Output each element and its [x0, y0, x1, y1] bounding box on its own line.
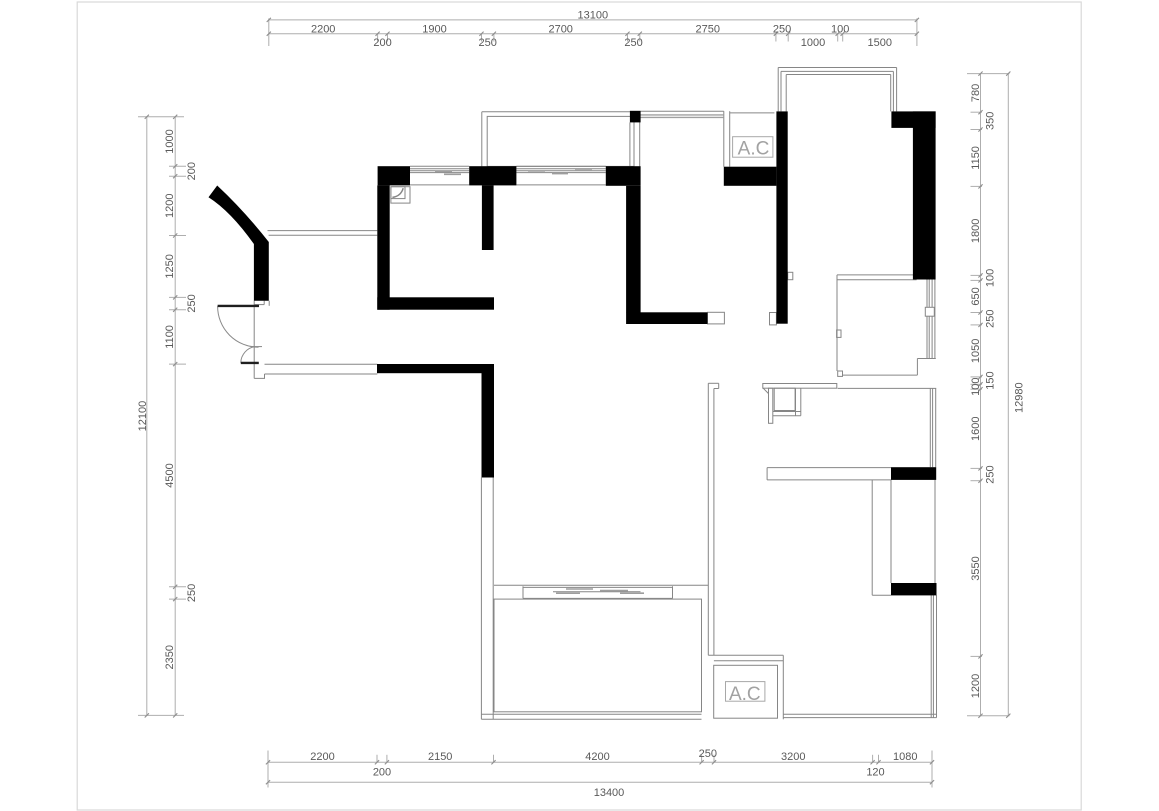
svg-text:2700: 2700: [548, 24, 572, 36]
svg-text:2750: 2750: [696, 24, 720, 36]
svg-text:200: 200: [373, 766, 391, 778]
svg-text:100: 100: [831, 24, 849, 36]
svg-text:650: 650: [970, 287, 982, 305]
svg-text:100: 100: [970, 378, 982, 396]
svg-text:1150: 1150: [970, 146, 982, 170]
svg-text:250: 250: [479, 37, 497, 49]
svg-text:120: 120: [866, 766, 884, 778]
svg-text:1050: 1050: [970, 339, 982, 363]
svg-text:250: 250: [984, 465, 996, 483]
svg-text:1900: 1900: [422, 24, 446, 36]
svg-text:12980: 12980: [1014, 382, 1026, 413]
svg-text:A.C: A.C: [738, 139, 770, 160]
svg-text:1200: 1200: [970, 674, 982, 698]
svg-text:13400: 13400: [594, 787, 625, 799]
svg-text:A.C: A.C: [729, 684, 761, 705]
svg-text:2350: 2350: [164, 645, 176, 669]
svg-text:12100: 12100: [137, 401, 149, 432]
svg-text:250: 250: [624, 37, 642, 49]
svg-text:13100: 13100: [578, 9, 609, 21]
svg-text:250: 250: [186, 294, 198, 312]
svg-text:4500: 4500: [164, 463, 176, 487]
svg-text:1000: 1000: [801, 37, 825, 49]
svg-text:2200: 2200: [310, 751, 334, 763]
svg-text:1100: 1100: [164, 325, 176, 349]
svg-text:780: 780: [970, 84, 982, 102]
svg-text:150: 150: [984, 371, 996, 389]
svg-text:1800: 1800: [970, 219, 982, 243]
svg-text:1200: 1200: [164, 194, 176, 218]
svg-text:4200: 4200: [585, 751, 609, 763]
svg-text:3200: 3200: [781, 751, 805, 763]
svg-text:200: 200: [186, 162, 198, 180]
svg-text:200: 200: [373, 37, 391, 49]
svg-text:250: 250: [699, 748, 717, 760]
svg-text:1600: 1600: [970, 417, 982, 441]
svg-text:100: 100: [984, 269, 996, 287]
svg-text:3550: 3550: [970, 556, 982, 580]
svg-text:1000: 1000: [164, 129, 176, 153]
svg-text:250: 250: [984, 310, 996, 328]
svg-text:250: 250: [186, 584, 198, 602]
svg-text:1080: 1080: [893, 751, 917, 763]
svg-text:1500: 1500: [868, 37, 892, 49]
svg-text:2200: 2200: [311, 24, 335, 36]
svg-text:2150: 2150: [428, 751, 452, 763]
svg-text:350: 350: [984, 112, 996, 130]
svg-text:250: 250: [773, 24, 791, 36]
svg-text:1250: 1250: [164, 254, 176, 278]
